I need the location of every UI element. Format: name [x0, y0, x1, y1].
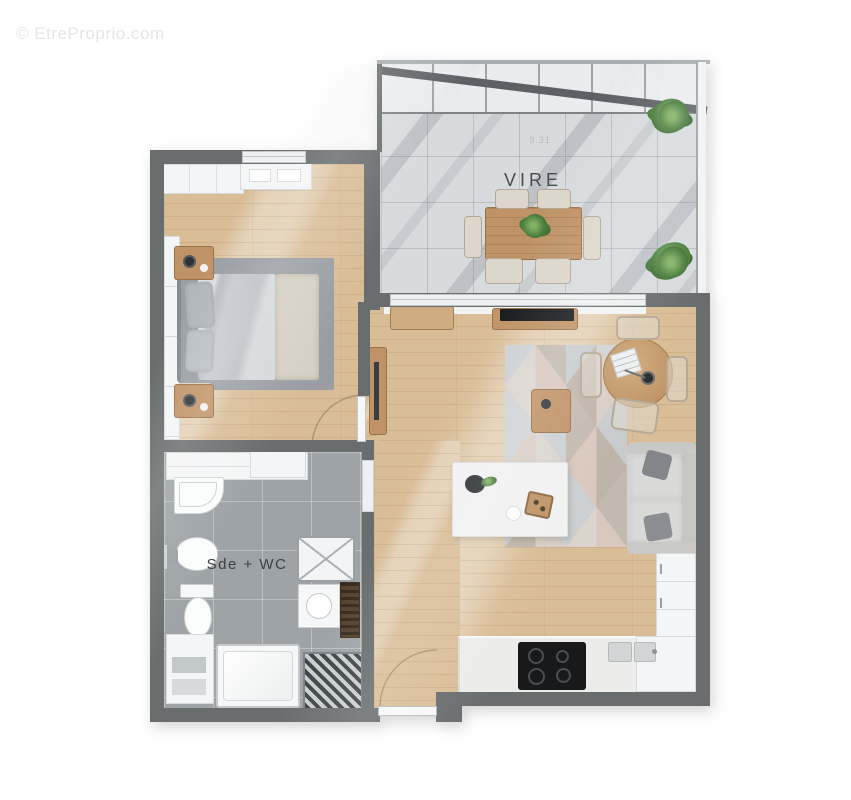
door-swing-arcs — [0, 0, 851, 800]
coffee-table — [531, 389, 571, 433]
terrace-dining-table — [485, 207, 582, 260]
cooktop — [518, 642, 586, 690]
toilet-tank — [180, 584, 214, 598]
bathroom-room-label: Sde + WC — [192, 556, 302, 573]
terrace-chair — [535, 258, 571, 284]
bed-pillow — [185, 329, 215, 372]
bedroom-door-leaf — [357, 396, 366, 442]
sideboard — [390, 306, 454, 330]
terrace-chair — [537, 189, 571, 209]
vanity-bowl — [306, 593, 332, 619]
slatted-mat — [303, 652, 363, 710]
terrace-chair — [495, 189, 529, 209]
saucer — [200, 264, 208, 272]
wall — [460, 692, 710, 706]
wall — [364, 150, 380, 310]
table-plant — [517, 212, 553, 244]
bedroom-window — [242, 151, 306, 163]
potted-plant — [645, 93, 697, 143]
dark-towel-rack — [340, 582, 360, 638]
shelf-opening — [172, 679, 206, 695]
nightstand — [174, 384, 214, 418]
floorplan-image: © EtreProprio.com — [0, 0, 851, 800]
basin-bowl — [179, 482, 217, 507]
burner-ring — [528, 648, 544, 664]
dining-chair — [610, 397, 660, 435]
toilet-bowl — [184, 597, 212, 637]
entrance-door-leaf — [378, 706, 437, 716]
wall — [150, 440, 374, 452]
washer-unit — [297, 536, 355, 582]
cup — [183, 255, 196, 268]
burner-ring — [556, 650, 569, 663]
terrace-room-label: VIRE — [493, 170, 573, 191]
potted-plant — [643, 235, 697, 289]
folded-towels — [277, 169, 301, 182]
herb-sprig — [480, 475, 498, 488]
terrace-chair — [485, 258, 523, 284]
basin-faucet — [166, 549, 178, 563]
wall — [150, 150, 164, 722]
bed-blanket — [275, 274, 319, 380]
kitchen-sink — [608, 642, 660, 664]
sofa-pillow — [643, 512, 673, 542]
sofa-backrest — [681, 442, 696, 554]
plate — [506, 506, 521, 521]
wall — [358, 302, 370, 396]
wall — [377, 64, 382, 152]
sofa — [627, 442, 696, 554]
terrace-chair — [464, 216, 482, 258]
island-table — [452, 462, 568, 537]
kitchen-tall-cabinets — [656, 553, 696, 639]
cup — [183, 394, 196, 407]
vanity-basin — [298, 584, 340, 628]
folded-towels — [249, 169, 271, 182]
shower-tray — [216, 644, 300, 708]
shelf-opening — [172, 657, 206, 673]
shower-tray-inner — [223, 651, 293, 701]
burner-ring — [556, 668, 571, 683]
terrace-dimension-label: 9.31 — [518, 135, 562, 145]
bathroom-shelf-unit — [166, 634, 214, 704]
bedroom-wardrobe — [162, 164, 244, 194]
plant-leaves — [519, 210, 552, 243]
bathroom-shelf-box — [250, 448, 306, 478]
terrace-sliding-door — [390, 294, 646, 306]
nightstand — [174, 246, 214, 280]
bedroom-dresser — [240, 162, 312, 190]
dining-chair — [580, 352, 602, 398]
television — [500, 309, 574, 321]
bathroom-door-opening — [362, 460, 374, 512]
bed-pillow — [184, 281, 215, 329]
burner-ring — [528, 668, 545, 685]
teapot — [541, 399, 551, 409]
serving-tray — [524, 491, 554, 520]
cabinet-handle — [660, 564, 662, 574]
wall — [150, 708, 380, 722]
dining-chair — [666, 356, 688, 402]
apartment-floorplan: 9.31 VIRE Sde + WC — [0, 0, 851, 800]
double-bed — [177, 271, 318, 383]
dining-chair — [616, 316, 660, 340]
wall — [696, 293, 710, 706]
faucet — [652, 649, 657, 654]
saucer — [200, 403, 208, 411]
wall — [436, 692, 462, 722]
terrace-chair — [583, 216, 601, 260]
hall-console — [369, 347, 387, 435]
cabinet-handle — [660, 598, 662, 608]
sink-basin — [608, 642, 632, 662]
round-table — [603, 338, 673, 408]
console-item — [374, 362, 379, 420]
